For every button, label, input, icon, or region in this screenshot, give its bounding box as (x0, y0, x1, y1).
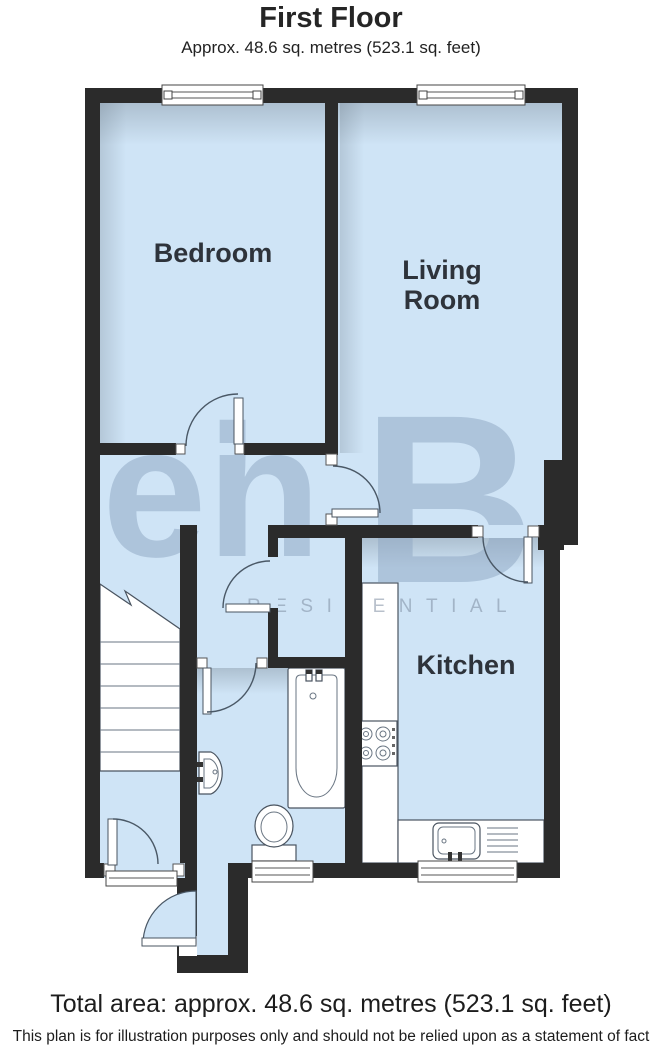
wall-stairs (180, 525, 197, 863)
jamb (257, 658, 267, 668)
bathtub (288, 668, 345, 808)
bedroom-label: Bedroom (154, 238, 273, 268)
bath-outer (288, 668, 345, 808)
disclaimer-text: This plan is for illustration purposes o… (0, 1028, 662, 1046)
wall-kitchen-west (345, 538, 362, 863)
wall-left (85, 88, 100, 878)
bathroom-window (252, 861, 313, 882)
wall-cupboard-stub-lower (268, 608, 278, 660)
room-shading (100, 103, 325, 145)
jamb (176, 444, 185, 454)
jamb (326, 454, 337, 465)
porch-interior (197, 863, 228, 955)
wall-bedroom-south-right (244, 443, 325, 455)
opening-bedroom (185, 443, 235, 455)
watermark: eh B RESIDENTIAL (102, 365, 535, 633)
wall-cupboard-stub-upper (268, 525, 278, 557)
wall-porch-right (228, 863, 248, 973)
basin-tap (197, 762, 203, 767)
sink-tap (458, 852, 462, 861)
opening-living (325, 465, 338, 514)
jamb (197, 658, 207, 668)
jamb (472, 526, 483, 537)
wall-bathroom-north (268, 657, 345, 668)
wall-bedroom-south-left (85, 443, 176, 455)
opening-cupboard (268, 557, 278, 608)
floor-plan-page: First Floor Approx. 48.6 sq. metres (523… (0, 0, 662, 1056)
wall-kitchen-north-corner (538, 525, 564, 550)
watermark-logo-eh: eh (102, 386, 321, 596)
sink-tap (448, 852, 452, 861)
opening-bathroom (207, 657, 257, 668)
floor-plan-drawing: eh B RESIDENTIAL (0, 0, 662, 1056)
entry-door-frame (106, 871, 177, 886)
room-shading (338, 103, 562, 145)
jamb (528, 526, 539, 537)
room-shading (340, 103, 364, 453)
basin-tap (197, 777, 203, 782)
living-room-window (417, 85, 525, 105)
wall-kitchen-north (268, 525, 478, 538)
bedroom-window (162, 85, 263, 105)
wall-right-upper (562, 88, 578, 460)
porch-door (142, 891, 197, 956)
total-area-text: Total area: approx. 48.6 sq. metres (523… (0, 990, 662, 1019)
wash-basin (197, 752, 222, 794)
watermark-tagline: RESIDENTIAL (247, 596, 520, 617)
watermark-logo-b: B (362, 365, 535, 633)
wall-bedroom-living-divider (325, 103, 338, 455)
kitchen-label: Kitchen (416, 650, 515, 680)
toilet (252, 805, 296, 861)
kitchen-window (418, 861, 517, 882)
living-room-label-line1: Living (402, 255, 482, 285)
exterior-notch (560, 543, 662, 883)
wall-right-lower (544, 545, 560, 878)
jamb (235, 444, 244, 454)
living-room-label-line2: Room (404, 285, 481, 315)
opening-kitchen (483, 525, 528, 538)
